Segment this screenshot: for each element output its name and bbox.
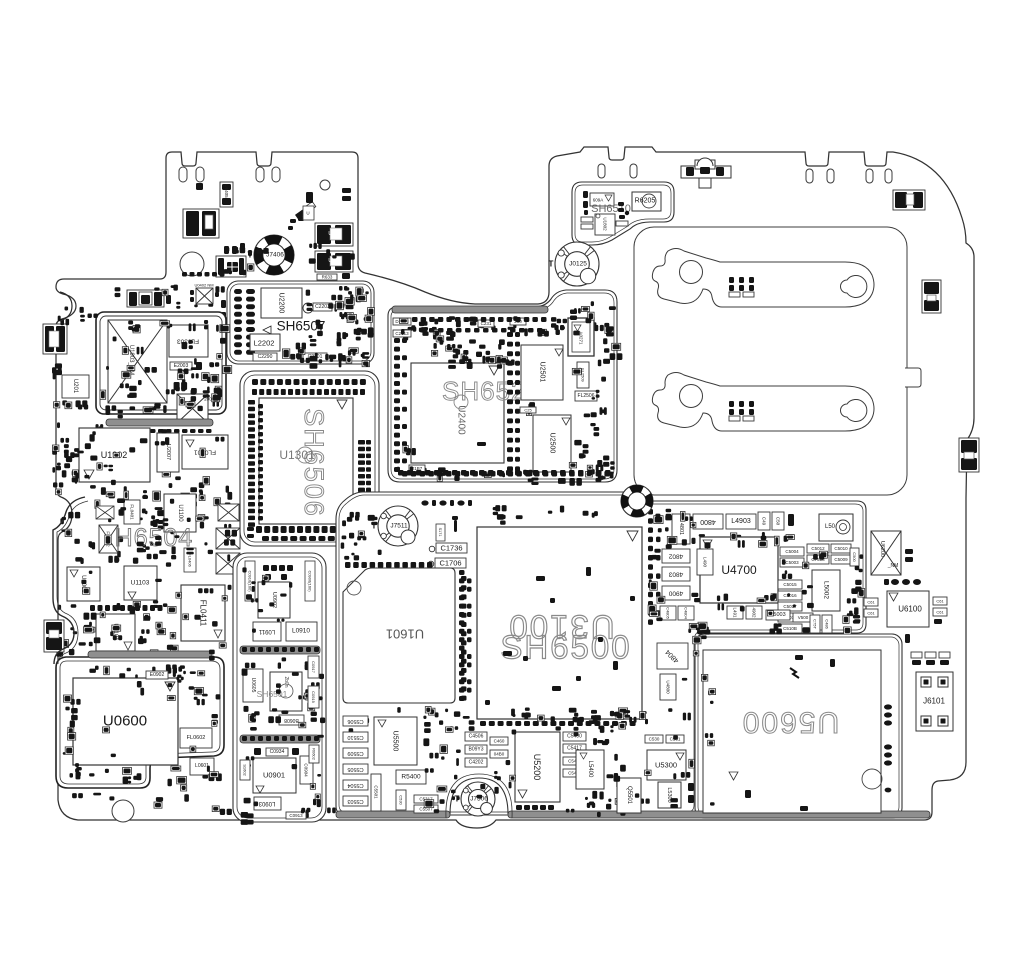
svg-text:J7406: J7406 [266, 252, 284, 259]
svg-text:L4903: L4903 [731, 518, 751, 525]
svg-text:U5500: U5500 [392, 731, 399, 752]
svg-text:FL0602: FL0602 [187, 735, 206, 741]
svg-text:C530: C530 [399, 795, 404, 805]
svg-text:U5300: U5300 [655, 761, 677, 770]
svg-text:C61: C61 [867, 611, 875, 616]
svg-text:C49: C49 [762, 517, 767, 526]
svg-text:C5016: C5016 [783, 593, 797, 598]
svg-text:C2203: C2203 [315, 304, 330, 310]
svg-text:C75T: C75T [813, 619, 818, 629]
svg-text:4902: 4902 [752, 607, 757, 618]
svg-text:C4202: C4202 [469, 760, 484, 766]
svg-text:J7511: J7511 [390, 523, 408, 530]
svg-text:R633: R633 [322, 275, 333, 280]
svg-text:C5510: C5510 [347, 734, 363, 740]
svg-text:U2500: U2500 [549, 433, 556, 454]
svg-text:C0904: C0904 [304, 763, 309, 777]
svg-text:U1802: U1802 [603, 217, 608, 231]
svg-text:U60: U60 [328, 231, 337, 237]
svg-text:4900: 4900 [668, 590, 683, 597]
svg-text:L50: L50 [825, 524, 836, 530]
svg-text:E2003: E2003 [174, 363, 189, 369]
svg-text:C5009: C5009 [834, 557, 848, 562]
svg-text:Q5501: Q5501 [626, 786, 632, 805]
svg-text:S1602: S1602 [243, 764, 248, 776]
svg-text:U1100: U1100 [177, 504, 183, 522]
svg-text:C61: C61 [867, 600, 875, 605]
svg-text:C61: C61 [936, 599, 944, 604]
svg-text:J6101: J6101 [923, 697, 945, 706]
svg-text:FL0303: FL0303 [177, 338, 199, 345]
svg-text:B0608: B0608 [284, 717, 299, 723]
svg-text:C1736: C1736 [440, 544, 462, 553]
svg-text:V500: V500 [798, 615, 809, 620]
svg-text:04B0: 04B0 [494, 752, 505, 757]
svg-text:L0910: L0910 [292, 628, 310, 635]
svg-text:C0919: C0919 [311, 691, 316, 704]
svg-text:U4800: U4800 [666, 680, 671, 694]
svg-text:C5004: C5004 [785, 549, 799, 554]
svg-text:C5506: C5506 [347, 718, 363, 724]
svg-text:C5015: C5015 [783, 582, 797, 587]
svg-text:L0911: L0911 [258, 628, 275, 634]
svg-text:C5012: C5012 [811, 546, 825, 551]
svg-text:H6504: H6504 [115, 524, 194, 552]
svg-text:C4804: C4804 [684, 607, 689, 620]
svg-text:R0602: R0602 [312, 748, 317, 761]
svg-text:U: U [306, 211, 309, 216]
svg-text:U2200: U2200 [278, 293, 285, 314]
svg-text:C25: C25 [524, 408, 532, 413]
svg-text:4803: 4803 [668, 571, 683, 578]
svg-text:L5002: L5002 [823, 581, 830, 599]
svg-text:J0125: J0125 [569, 261, 587, 268]
svg-text:C5501: C5501 [374, 785, 379, 799]
svg-text:FL0411: FL0411 [199, 600, 208, 627]
svg-text:C0906(160): C0906(160) [308, 570, 313, 592]
svg-text:C61: C61 [936, 610, 944, 615]
svg-text:L490: L490 [703, 557, 708, 568]
svg-text:C0913: C0913 [289, 813, 303, 818]
svg-text:2b0n: 2b0n [283, 676, 289, 687]
svg-text:U6100: U6100 [898, 605, 922, 614]
svg-text:U6405: U6405 [224, 184, 229, 198]
svg-text:C5003: C5003 [785, 560, 799, 565]
svg-text:R6205: R6205 [635, 198, 656, 205]
svg-text:C500: C500 [852, 552, 857, 562]
svg-text:C486: C486 [825, 619, 830, 629]
svg-text:SH6500: SH6500 [500, 629, 631, 666]
svg-text:L491: L491 [733, 607, 738, 618]
svg-text:_NM: _NM [887, 563, 899, 569]
svg-text:U6200: U6200 [879, 541, 885, 557]
svg-text:C4506: C4506 [469, 734, 484, 740]
svg-text:U5200: U5200 [532, 754, 542, 781]
svg-text:4801: 4801 [678, 523, 684, 535]
svg-text:U60: U60 [328, 258, 337, 264]
svg-text:C5505: C5505 [347, 766, 363, 772]
svg-text:C5509: C5509 [347, 750, 363, 756]
svg-text:C0917: C0917 [311, 661, 316, 674]
svg-text:U0402 NM: U0402 NM [194, 283, 213, 288]
svg-text:C5503: C5503 [347, 798, 363, 804]
svg-text:B09Y3: B09Y3 [468, 747, 483, 753]
svg-text:C4805: C4805 [666, 607, 671, 620]
svg-text:C1706: C1706 [439, 559, 461, 568]
svg-text:U2007: U2007 [165, 444, 171, 460]
svg-text:4800: 4800 [700, 518, 716, 525]
svg-text:L5400: L5400 [587, 761, 593, 778]
svg-text:C50: C50 [776, 517, 781, 526]
svg-text:U4700: U4700 [721, 563, 757, 577]
svg-text:FL0406: FL0406 [188, 553, 193, 567]
svg-text:C0934: C0934 [270, 749, 285, 755]
svg-text:E0902: E0902 [150, 672, 165, 678]
svg-text:U1601: U1601 [386, 627, 424, 642]
svg-text:4802: 4802 [668, 553, 683, 560]
svg-text:T: T [549, 260, 554, 269]
svg-text:U2400: U2400 [456, 405, 467, 435]
svg-text:U0605: U0605 [250, 678, 256, 693]
svg-text:L2202: L2202 [254, 339, 275, 348]
svg-text:C5504: C5504 [347, 782, 363, 788]
svg-text:U201: U201 [72, 379, 78, 394]
svg-text:L0903: L0903 [258, 800, 275, 806]
svg-text:SH6501: SH6501 [257, 689, 288, 699]
svg-text:FL0401: FL0401 [130, 504, 135, 520]
svg-text:C5010: C5010 [834, 546, 848, 551]
svg-text:U0901: U0901 [263, 771, 285, 780]
svg-text:U5600: U5600 [741, 706, 839, 739]
svg-text:U1103: U1103 [131, 580, 150, 587]
svg-text:C530: C530 [649, 737, 660, 742]
svg-text:R5400: R5400 [401, 774, 421, 781]
svg-text:U2501: U2501 [539, 362, 546, 383]
svg-text:C510B: C510B [783, 626, 797, 631]
svg-text:C460: C460 [494, 739, 505, 744]
svg-text:S171: S171 [438, 528, 442, 537]
svg-text:C2290: C2290 [258, 354, 273, 360]
svg-text:609A: 609A [593, 198, 604, 203]
